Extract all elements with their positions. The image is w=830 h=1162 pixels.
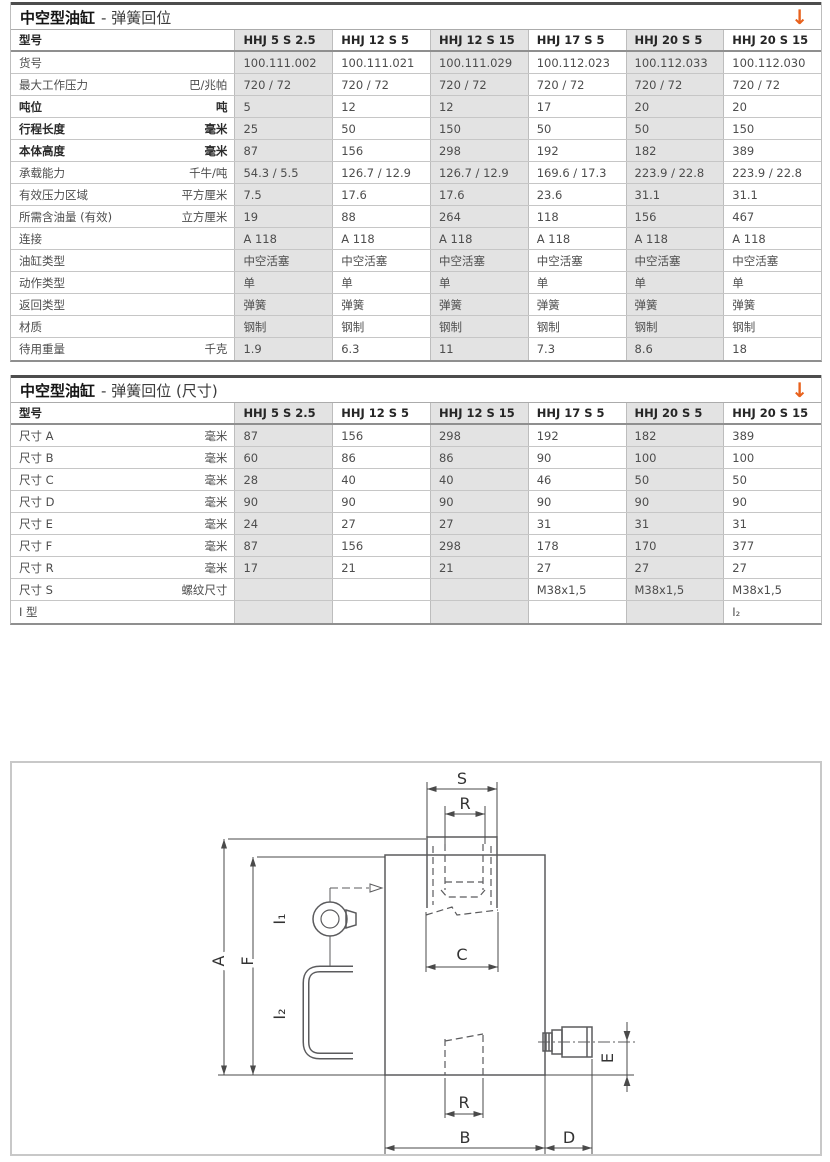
value-cell: 钢制 — [332, 316, 430, 337]
table-row: 行程长度毫米25501505050150 — [11, 118, 821, 140]
row-unit: 毫米 — [204, 450, 227, 466]
value-cell: 50 — [528, 118, 626, 139]
model-column-header: HHJ 17 S 5 — [528, 30, 626, 50]
value-cell: 11 — [430, 338, 528, 360]
value-cell: 弹簧 — [430, 294, 528, 315]
value-cell: 178 — [528, 535, 626, 556]
dim-label-d: D — [563, 1128, 575, 1147]
model-column-header: HHJ 20 S 5 — [626, 30, 724, 50]
value-cell: 389 — [723, 140, 821, 161]
model-column-header: HHJ 12 S 5 — [332, 403, 430, 423]
value-cell: 100.111.029 — [430, 52, 528, 73]
value-cell: 192 — [528, 140, 626, 161]
section-subtitle: - 弹簧回位 — [101, 7, 171, 28]
value-cell: 17.6 — [430, 184, 528, 205]
table-row: 尺寸 E毫米242727313131 — [11, 513, 821, 535]
value-cell: A 118 — [626, 228, 724, 249]
value-cell: 50 — [723, 469, 821, 490]
value-cell: 50 — [332, 118, 430, 139]
value-cell: 单 — [528, 272, 626, 293]
value-cell: 40 — [430, 469, 528, 490]
value-cell: 377 — [723, 535, 821, 556]
value-cell: 156 — [626, 206, 724, 227]
dim-label-a: A — [209, 955, 228, 966]
table-row: 油缸类型中空活塞中空活塞中空活塞中空活塞中空活塞中空活塞 — [11, 250, 821, 272]
value-cell: 25 — [234, 118, 332, 139]
value-cell: 弹簧 — [626, 294, 724, 315]
value-cell — [332, 601, 430, 623]
value-cell: 单 — [234, 272, 332, 293]
value-cell: 单 — [332, 272, 430, 293]
value-cell: 6.3 — [332, 338, 430, 360]
value-cell: 264 — [430, 206, 528, 227]
value-cell: 90 — [234, 491, 332, 512]
value-cell: 40 — [332, 469, 430, 490]
row-label: 尺寸 C — [19, 472, 54, 488]
value-cell: 31 — [528, 513, 626, 534]
row-label-cell: 返回类型 — [11, 294, 234, 315]
row-label-cell: 尺寸 S螺纹尺寸 — [11, 579, 234, 600]
value-cell: A 118 — [234, 228, 332, 249]
value-cell: 24 — [234, 513, 332, 534]
value-cell: 中空活塞 — [332, 250, 430, 271]
row-unit: 千克 — [204, 341, 227, 357]
row-unit: 吨 — [216, 99, 228, 115]
spec-table: 型号HHJ 5 S 2.5HHJ 12 S 5HHJ 12 S 15HHJ 17… — [11, 30, 821, 360]
jump-down-arrow-icon[interactable]: ↓ — [787, 7, 812, 27]
value-cell: 126.7 / 12.9 — [332, 162, 430, 183]
value-cell: 100.112.030 — [723, 52, 821, 73]
value-cell: 27 — [430, 513, 528, 534]
extension-lines — [218, 782, 634, 1154]
dim-label-i1: I₁ — [270, 913, 289, 924]
value-cell: 60 — [234, 447, 332, 468]
model-column-header: HHJ 20 S 5 — [626, 403, 724, 423]
value-cell: 90 — [332, 491, 430, 512]
value-cell: 720 / 72 — [332, 74, 430, 95]
table-header-row: 型号HHJ 5 S 2.5HHJ 12 S 5HHJ 12 S 15HHJ 17… — [11, 30, 821, 52]
value-cell: 27 — [332, 513, 430, 534]
value-cell: 中空活塞 — [626, 250, 724, 271]
value-cell: 中空活塞 — [528, 250, 626, 271]
model-column-header: HHJ 12 S 15 — [430, 403, 528, 423]
row-label-cell: 尺寸 C毫米 — [11, 469, 234, 490]
value-cell: 19 — [234, 206, 332, 227]
eye-bolt-accessory — [313, 902, 356, 936]
spec-table-section: 中空型油缸 - 弹簧回位 ↓ 型号HHJ 5 S 2.5HHJ 12 S 5HH… — [10, 2, 822, 362]
row-label: 尺寸 E — [19, 516, 53, 532]
value-cell: A 118 — [528, 228, 626, 249]
model-column-header: HHJ 5 S 2.5 — [234, 30, 332, 50]
row-label-cell: 待用重量千克 — [11, 338, 234, 360]
model-column-header: HHJ 12 S 5 — [332, 30, 430, 50]
value-cell: 8.6 — [626, 338, 724, 360]
model-column-header: HHJ 12 S 15 — [430, 30, 528, 50]
value-cell: 单 — [626, 272, 724, 293]
dim-label-b: B — [460, 1128, 471, 1147]
row-label-cell: 有效压力区域平方厘米 — [11, 184, 234, 205]
value-cell: 90 — [626, 491, 724, 512]
model-column-header: HHJ 5 S 2.5 — [234, 403, 332, 423]
row-label-cell: 尺寸 R毫米 — [11, 557, 234, 578]
value-cell: A 118 — [430, 228, 528, 249]
value-cell: 100.111.002 — [234, 52, 332, 73]
row-unit: 巴/兆帕 — [189, 77, 227, 93]
value-cell: 20 — [626, 96, 724, 117]
section-title: 中空型油缸 — [20, 380, 95, 401]
value-cell: 223.9 / 22.8 — [626, 162, 724, 183]
value-cell: I₂ — [723, 601, 821, 623]
value-cell: 54.3 / 5.5 — [234, 162, 332, 183]
value-cell: 50 — [626, 118, 724, 139]
row-label: 吨位 — [19, 99, 42, 115]
value-cell — [332, 579, 430, 600]
value-cell: 28 — [234, 469, 332, 490]
row-label-cell: 行程长度毫米 — [11, 118, 234, 139]
value-cell: 298 — [430, 535, 528, 556]
model-column-header: HHJ 17 S 5 — [528, 403, 626, 423]
dim-label-e: E — [598, 1053, 617, 1063]
table-row: 材质钢制钢制钢制钢制钢制钢制 — [11, 316, 821, 338]
table-row: 所需含油量 (有效)立方厘米1988264118156467 — [11, 206, 821, 228]
value-cell: 31 — [723, 513, 821, 534]
value-cell: 720 / 72 — [723, 74, 821, 95]
value-cell: 223.9 / 22.8 — [723, 162, 821, 183]
value-cell: 46 — [528, 469, 626, 490]
value-cell: 钢制 — [528, 316, 626, 337]
row-label-cell: 尺寸 B毫米 — [11, 447, 234, 468]
value-cell: 100.112.033 — [626, 52, 724, 73]
row-label: 尺寸 F — [19, 538, 52, 554]
value-cell: 23.6 — [528, 184, 626, 205]
dim-label-f: F — [238, 956, 257, 965]
value-cell: 100.111.021 — [332, 52, 430, 73]
table-row: 尺寸 R毫米172121272727 — [11, 557, 821, 579]
row-unit: 毫米 — [204, 538, 227, 554]
value-cell: 156 — [332, 425, 430, 446]
section-title-bar: 中空型油缸 - 弹簧回位 ↓ — [11, 2, 821, 30]
model-column-label: 型号 — [11, 403, 234, 423]
row-label-cell: 尺寸 E毫米 — [11, 513, 234, 534]
row-label: 所需含油量 (有效) — [19, 209, 112, 225]
value-cell — [430, 601, 528, 623]
dim-label-s: S — [457, 769, 467, 788]
value-cell: 169.6 / 17.3 — [528, 162, 626, 183]
table-row: 尺寸 A毫米87156298192182389 — [11, 425, 821, 447]
table-row: 吨位吨51212172020 — [11, 96, 821, 118]
value-cell: 100 — [723, 447, 821, 468]
row-unit: 毫米 — [204, 121, 227, 137]
value-cell: 7.3 — [528, 338, 626, 360]
row-unit: 毫米 — [204, 472, 227, 488]
value-cell: 90 — [528, 447, 626, 468]
row-label: 尺寸 D — [19, 494, 55, 510]
row-label-cell: 尺寸 A毫米 — [11, 425, 234, 446]
value-cell: 12 — [332, 96, 430, 117]
row-label-cell: 尺寸 D毫米 — [11, 491, 234, 512]
row-unit: 毫米 — [204, 143, 227, 159]
section-title: 中空型油缸 — [20, 7, 95, 28]
row-unit: 千牛/吨 — [189, 165, 227, 181]
value-cell: 钢制 — [723, 316, 821, 337]
value-cell: 90 — [528, 491, 626, 512]
value-cell: 170 — [626, 535, 724, 556]
value-cell: 12 — [430, 96, 528, 117]
value-cell: 21 — [332, 557, 430, 578]
value-cell: 182 — [626, 140, 724, 161]
value-cell: 27 — [528, 557, 626, 578]
value-cell: 298 — [430, 425, 528, 446]
row-label: 最大工作压力 — [19, 77, 88, 93]
value-cell — [528, 601, 626, 623]
table-row: 本体高度毫米87156298192182389 — [11, 140, 821, 162]
row-label: 承载能力 — [19, 165, 65, 181]
value-cell: 31.1 — [723, 184, 821, 205]
value-cell: 126.7 / 12.9 — [430, 162, 528, 183]
value-cell: 156 — [332, 140, 430, 161]
value-cell: 1.9 — [234, 338, 332, 360]
value-cell: 5 — [234, 96, 332, 117]
value-cell: 中空活塞 — [234, 250, 332, 271]
value-cell: A 118 — [332, 228, 430, 249]
row-label: 货号 — [19, 55, 42, 71]
value-cell: 118 — [528, 206, 626, 227]
value-cell: 100.112.023 — [528, 52, 626, 73]
value-cell: 86 — [332, 447, 430, 468]
value-cell: 31 — [626, 513, 724, 534]
value-cell: 90 — [723, 491, 821, 512]
value-cell: 86 — [430, 447, 528, 468]
dim-label-c: C — [456, 945, 467, 964]
dim-label-r-bottom: R — [458, 1093, 469, 1112]
table-row: 连接A 118A 118A 118A 118A 118A 118 — [11, 228, 821, 250]
dimension-lines — [224, 789, 592, 1148]
value-cell: 20 — [723, 96, 821, 117]
row-label-cell: 所需含油量 (有效)立方厘米 — [11, 206, 234, 227]
value-cell: 钢制 — [234, 316, 332, 337]
value-cell: 150 — [723, 118, 821, 139]
row-label: 连接 — [19, 231, 42, 247]
value-cell — [626, 601, 724, 623]
value-cell: 中空活塞 — [430, 250, 528, 271]
row-unit: 毫米 — [204, 428, 227, 444]
row-unit: 毫米 — [204, 516, 227, 532]
row-unit: 螺纹尺寸 — [181, 582, 227, 598]
value-cell — [234, 579, 332, 600]
row-unit: 立方厘米 — [181, 209, 227, 225]
value-cell: 17.6 — [332, 184, 430, 205]
row-label: 材质 — [19, 319, 42, 335]
value-cell: 50 — [626, 469, 724, 490]
section-subtitle: - 弹簧回位 (尺寸) — [101, 380, 218, 401]
row-label-cell: 本体高度毫米 — [11, 140, 234, 161]
row-label: 尺寸 R — [19, 560, 54, 576]
value-cell: A 118 — [723, 228, 821, 249]
table-row: 动作类型单单单单单单 — [11, 272, 821, 294]
row-label: 尺寸 B — [19, 450, 54, 466]
value-cell: M38x1,5 — [723, 579, 821, 600]
table-row: 最大工作压力巴/兆帕720 / 72720 / 72720 / 72720 / … — [11, 74, 821, 96]
value-cell: 单 — [430, 272, 528, 293]
row-label-cell: 最大工作压力巴/兆帕 — [11, 74, 234, 95]
cylinder-body-outline — [385, 837, 592, 1075]
value-cell: 100 — [626, 447, 724, 468]
value-cell: 中空活塞 — [723, 250, 821, 271]
table-row: 返回类型弹簧弹簧弹簧弹簧弹簧弹簧 — [11, 294, 821, 316]
table-row: 有效压力区域平方厘米7.517.617.623.631.131.1 — [11, 184, 821, 206]
value-cell: 389 — [723, 425, 821, 446]
table-header-row: 型号HHJ 5 S 2.5HHJ 12 S 5HHJ 12 S 15HHJ 17… — [11, 403, 821, 425]
row-label: 待用重量 — [19, 341, 65, 357]
row-unit: 毫米 — [204, 560, 227, 576]
value-cell: 720 / 72 — [528, 74, 626, 95]
table-row: 待用重量千克1.96.3117.38.618 — [11, 338, 821, 360]
value-cell: 弹簧 — [332, 294, 430, 315]
value-cell: 弹簧 — [723, 294, 821, 315]
handle-accessory — [306, 969, 353, 1056]
value-cell: 弹簧 — [528, 294, 626, 315]
row-label: 尺寸 S — [19, 582, 53, 598]
row-label: I 型 — [19, 604, 38, 620]
row-label-cell: 动作类型 — [11, 272, 234, 293]
value-cell — [234, 601, 332, 623]
row-label-cell: 尺寸 F毫米 — [11, 535, 234, 556]
row-label: 本体高度 — [19, 143, 65, 159]
model-column-header: HHJ 20 S 15 — [723, 30, 821, 50]
value-cell: 27 — [626, 557, 724, 578]
row-label: 油缸类型 — [19, 253, 65, 269]
row-label-cell: 连接 — [11, 228, 234, 249]
value-cell: 单 — [723, 272, 821, 293]
model-column-header: HHJ 20 S 15 — [723, 403, 821, 423]
value-cell: 87 — [234, 535, 332, 556]
value-cell: 31.1 — [626, 184, 724, 205]
value-cell: 150 — [430, 118, 528, 139]
value-cell: 192 — [528, 425, 626, 446]
value-cell: M38x1,5 — [626, 579, 724, 600]
value-cell: 27 — [723, 557, 821, 578]
dimension-table-section: 中空型油缸 - 弹簧回位 (尺寸) ↓ 型号HHJ 5 S 2.5HHJ 12 … — [10, 375, 822, 625]
row-label-cell: 承载能力千牛/吨 — [11, 162, 234, 183]
section-title-bar: 中空型油缸 - 弹簧回位 (尺寸) ↓ — [11, 375, 821, 403]
value-cell: M38x1,5 — [528, 579, 626, 600]
table-row: 货号100.111.002100.111.021100.111.029100.1… — [11, 52, 821, 74]
dimension-diagram: S R C A F I₁ I₂ E R B D — [10, 761, 822, 1156]
value-cell: 720 / 72 — [234, 74, 332, 95]
table-row: 尺寸 F毫米87156298178170377 — [11, 535, 821, 557]
table-row: 尺寸 D毫米909090909090 — [11, 491, 821, 513]
value-cell: 720 / 72 — [626, 74, 724, 95]
row-label: 有效压力区域 — [19, 187, 88, 203]
table-row: 尺寸 C毫米284040465050 — [11, 469, 821, 491]
value-cell: 88 — [332, 206, 430, 227]
value-cell: 298 — [430, 140, 528, 161]
value-cell: 18 — [723, 338, 821, 360]
dim-label-i2: I₂ — [270, 1008, 289, 1019]
value-cell: 87 — [234, 425, 332, 446]
table-row: 尺寸 B毫米60868690100100 — [11, 447, 821, 469]
table-row: 承载能力千牛/吨54.3 / 5.5126.7 / 12.9126.7 / 12… — [11, 162, 821, 184]
datasheet-page: { "colors": { "accent_orange": "#e8611c"… — [0, 2, 830, 1162]
row-label: 动作类型 — [19, 275, 65, 291]
row-unit: 毫米 — [204, 494, 227, 510]
jump-down-arrow-icon[interactable]: ↓ — [787, 380, 812, 400]
row-label: 返回类型 — [19, 297, 65, 313]
value-cell: 钢制 — [626, 316, 724, 337]
row-label-cell: 吨位吨 — [11, 96, 234, 117]
value-cell: 90 — [430, 491, 528, 512]
row-label-cell: 油缸类型 — [11, 250, 234, 271]
row-label-cell: 货号 — [11, 52, 234, 73]
table-row: I 型I₂ — [11, 601, 821, 623]
row-unit: 平方厘米 — [181, 187, 227, 203]
table-row: 尺寸 S螺纹尺寸M38x1,5M38x1,5M38x1,5 — [11, 579, 821, 601]
row-label-cell: 材质 — [11, 316, 234, 337]
cylinder-drawing: S R C A F I₁ I₂ E R B D — [12, 763, 820, 1154]
value-cell: 87 — [234, 140, 332, 161]
row-label: 尺寸 A — [19, 428, 54, 444]
dimension-table: 型号HHJ 5 S 2.5HHJ 12 S 5HHJ 12 S 15HHJ 17… — [11, 403, 821, 623]
value-cell: 182 — [626, 425, 724, 446]
dim-label-r-top: R — [459, 794, 470, 813]
row-label-cell: I 型 — [11, 601, 234, 623]
value-cell: 钢制 — [430, 316, 528, 337]
value-cell: 467 — [723, 206, 821, 227]
value-cell — [430, 579, 528, 600]
value-cell: 17 — [528, 96, 626, 117]
row-label: 行程长度 — [19, 121, 65, 137]
value-cell: 弹簧 — [234, 294, 332, 315]
value-cell: 720 / 72 — [430, 74, 528, 95]
value-cell: 17 — [234, 557, 332, 578]
model-column-label: 型号 — [11, 30, 234, 50]
value-cell: 21 — [430, 557, 528, 578]
value-cell: 7.5 — [234, 184, 332, 205]
value-cell: 156 — [332, 535, 430, 556]
